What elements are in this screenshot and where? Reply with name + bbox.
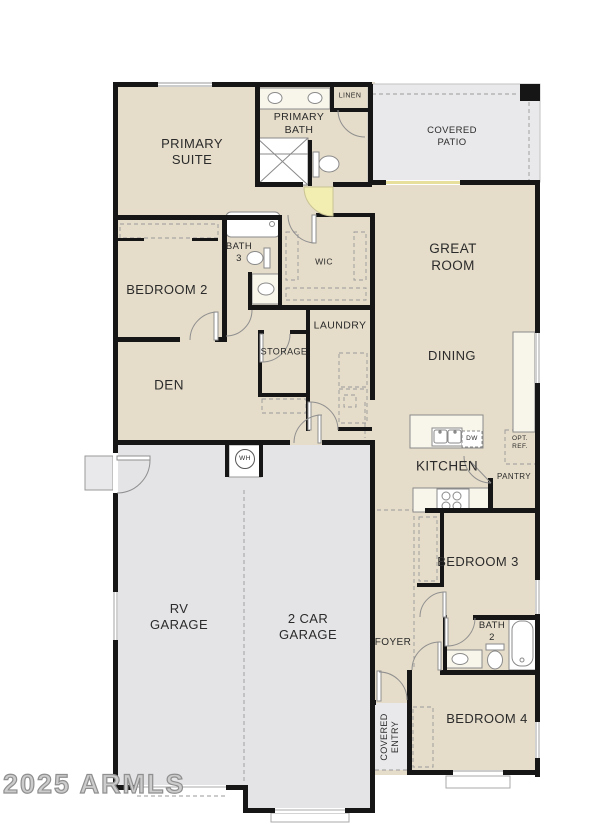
garage-door-recess — [271, 813, 349, 822]
toilet-icon — [486, 644, 504, 669]
window-sill — [446, 776, 510, 788]
room-label-bedroom2: BEDROOM 2 — [126, 282, 208, 298]
room-label-pantry: PANTRY — [497, 472, 531, 482]
room-label-bedroom4: BEDROOM 4 — [446, 711, 528, 727]
bathtub-icon — [509, 617, 537, 670]
label-line: BATH — [226, 241, 252, 253]
room-label-linen: LINEN — [339, 93, 362, 102]
room-label-laundry: LAUNDRY — [314, 319, 367, 332]
window — [453, 770, 503, 775]
room-label-dining: DINING — [428, 348, 476, 364]
label-line: COVERED — [427, 125, 477, 137]
label-line: OPT. — [512, 435, 528, 443]
label-line: PRIMARY — [161, 136, 223, 152]
room-label-covered-patio: COVERED PATIO — [427, 125, 477, 149]
label-line: 2 CAR — [279, 611, 337, 627]
window — [113, 592, 118, 640]
room-label-primary-bath: PRIMARY BATH — [274, 111, 324, 137]
room-label-two-car-garage: 2 CAR GARAGE — [279, 611, 337, 644]
label-water-heater: WH — [239, 455, 251, 463]
label-line: REF. — [512, 443, 528, 451]
label-line: RV — [150, 601, 208, 617]
room-label-bath3: BATH 3 — [226, 241, 252, 265]
room-label-bedroom3: BEDROOM 3 — [437, 554, 519, 570]
room-label-wic: WIC — [315, 257, 333, 268]
label-line: GARAGE — [279, 627, 337, 643]
label-dishwasher: DW — [466, 435, 478, 443]
label-line: PRIMARY — [274, 111, 324, 124]
label-line: ROOM — [429, 258, 477, 275]
shower-icon — [257, 138, 308, 185]
patio-post — [520, 84, 540, 101]
floor-plan: PRIMARY SUITE PRIMARY BATH LINEN COVERED… — [0, 0, 607, 823]
window — [158, 82, 212, 87]
room-label-great-room: GREAT ROOM — [429, 241, 477, 275]
label-line: GARAGE — [150, 617, 208, 633]
room-label-primary-suite: PRIMARY SUITE — [161, 136, 223, 169]
room-label-storage: STORAGE — [261, 346, 308, 357]
sliding-door — [386, 180, 460, 185]
room-label-covered-entry: COVERED ENTRY — [379, 713, 402, 760]
label-line: BATH — [479, 620, 505, 632]
tub-drain — [270, 222, 275, 227]
label-line: 2 — [479, 632, 505, 644]
label-line: ENTRY — [390, 713, 401, 760]
sink-cabinet — [252, 274, 280, 304]
room-label-rv-garage: RV GARAGE — [150, 601, 208, 634]
room-label-den: DEN — [154, 378, 184, 395]
room-label-opt-ref: OPT. REF. — [512, 435, 528, 451]
label-line: SUITE — [161, 152, 223, 168]
window — [535, 333, 540, 383]
label-line: 3 — [226, 253, 252, 265]
window — [535, 580, 540, 614]
label-line: PATIO — [427, 137, 477, 149]
sink-icon — [268, 93, 282, 104]
garage-side-stoop — [85, 456, 113, 490]
room-label-bath2: BATH 2 — [479, 620, 505, 644]
kitchen-counter — [513, 332, 535, 432]
armls-watermark: 2025 ARMLS — [3, 769, 186, 800]
window — [535, 722, 540, 758]
label-line: GREAT — [429, 241, 477, 258]
label-line: COVERED — [379, 713, 390, 760]
sink-icon — [308, 93, 322, 104]
room-label-kitchen: KITCHEN — [416, 459, 478, 476]
label-line: BATH — [274, 124, 324, 137]
sink-cabinet — [446, 650, 482, 668]
room-label-foyer: FOYER — [375, 637, 411, 650]
